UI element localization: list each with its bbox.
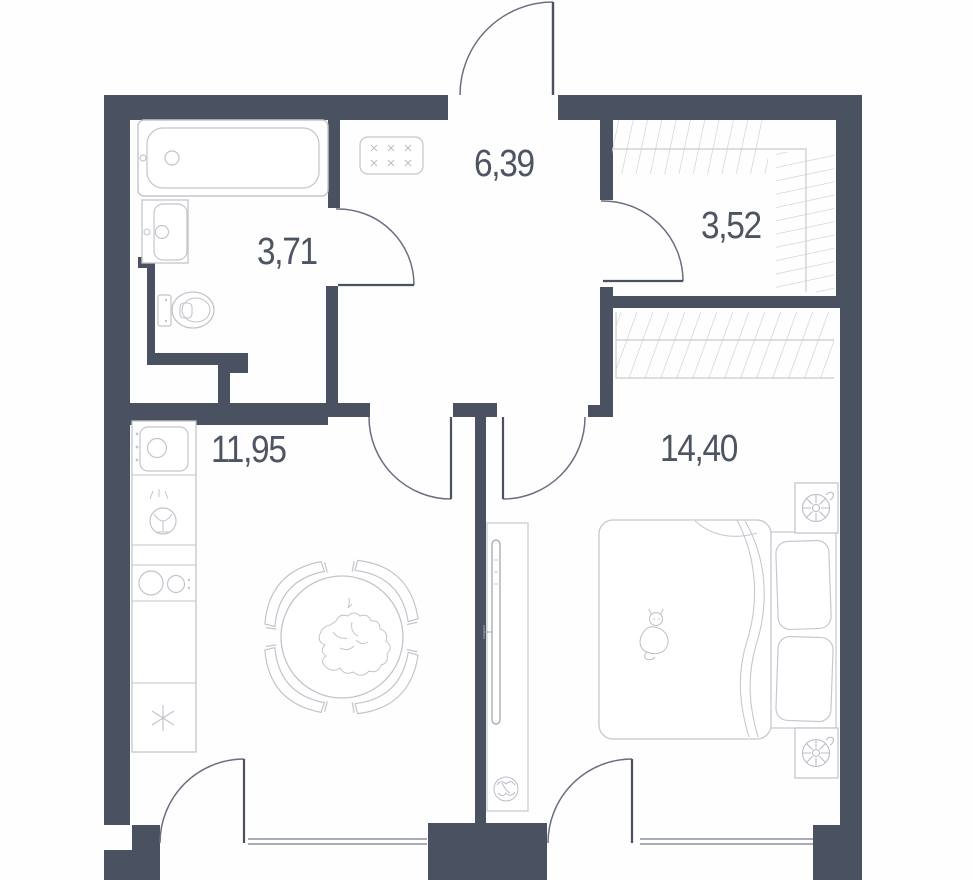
plan-drawing [0, 0, 973, 880]
entrance-door [460, 2, 553, 95]
electrical-panel [360, 137, 423, 174]
toilet [158, 292, 214, 328]
room-area-label-bedroom: 14,40 [660, 428, 737, 471]
plant [494, 777, 518, 801]
wardrobe-door [601, 201, 683, 281]
bathroom-sink [142, 200, 188, 263]
window-bedroom [640, 839, 813, 844]
pillow [776, 636, 834, 722]
floor-plan: 6,39 3,52 3,71 11,95 14,40 [0, 0, 973, 880]
room-area-label-wardrobe: 3,52 [701, 205, 761, 248]
bedroom-wardrobe-hatching [616, 312, 834, 378]
windows [248, 839, 813, 844]
closet-hatch-top [612, 120, 768, 174]
window-living [248, 839, 427, 844]
room-area-label-hallway: 6,39 [474, 143, 534, 186]
room-area-label-kitchen-living: 11,95 [211, 429, 286, 472]
living-room-door [369, 417, 451, 499]
balcony-door-living [160, 759, 244, 843]
kitchen-counter [132, 421, 196, 752]
bathtub [138, 120, 328, 196]
duvet [599, 520, 771, 739]
balcony-door-bedroom [548, 759, 632, 843]
closet-hatch-right [776, 152, 834, 292]
bedroom-door [503, 417, 585, 499]
bedroom-closet-hatch [616, 312, 834, 378]
pillow [775, 540, 831, 630]
dining-table [281, 576, 403, 698]
tv-console [484, 523, 528, 811]
room-area-label-bathroom: 3,71 [257, 231, 317, 274]
bathroom-door [336, 209, 414, 285]
tv [484, 540, 500, 724]
bed [599, 520, 836, 739]
